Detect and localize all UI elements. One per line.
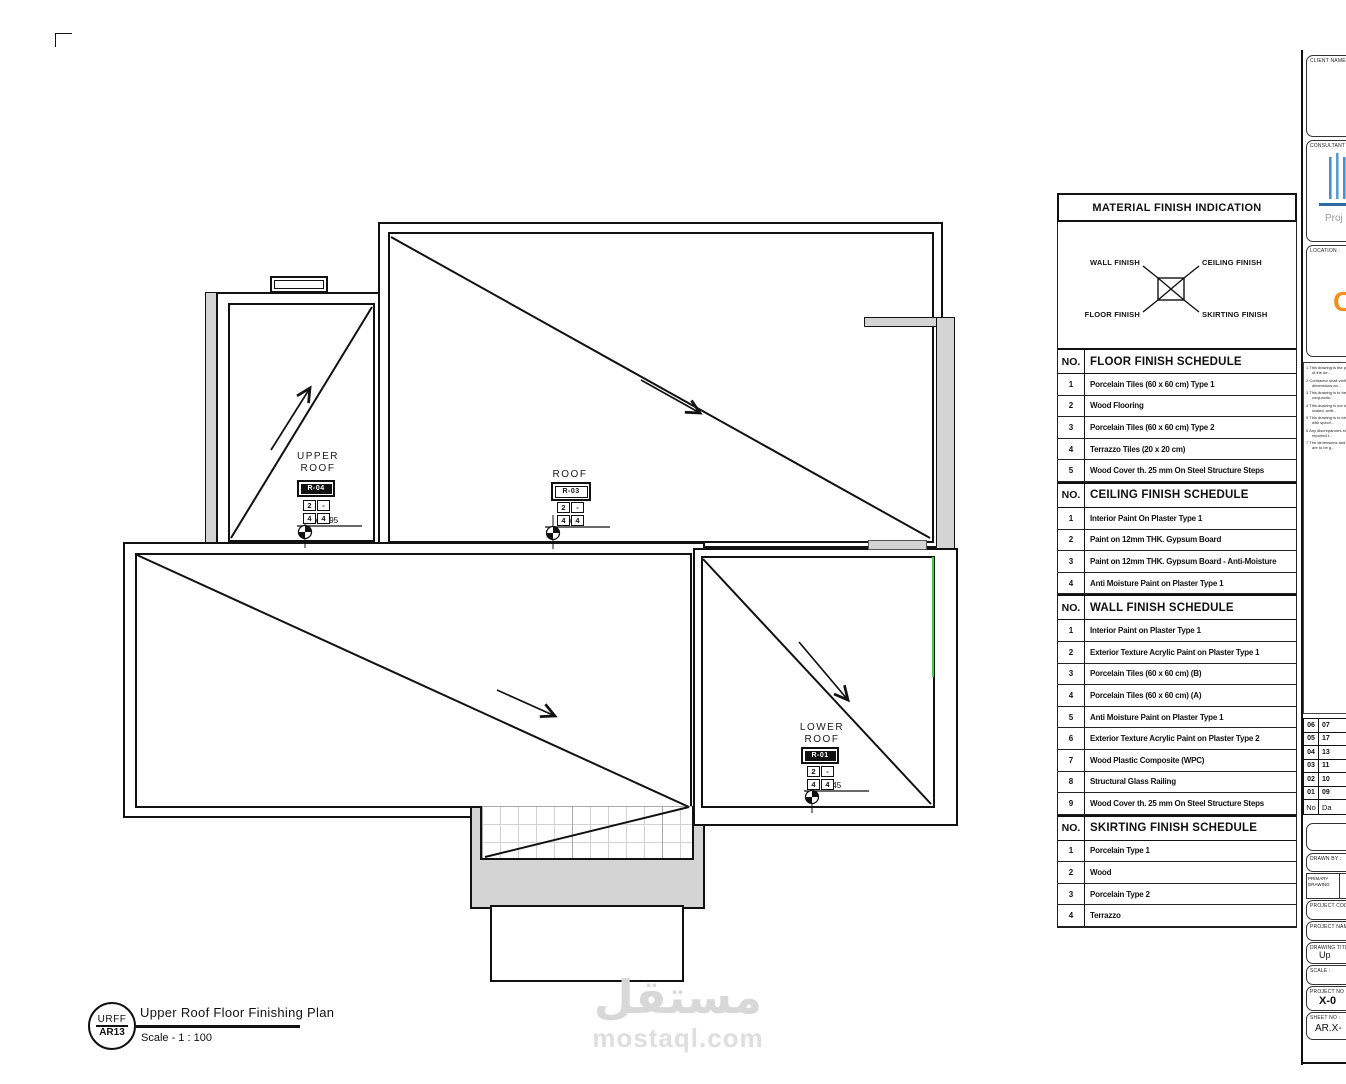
sheet-no-box: SHEET NO : AR.X- xyxy=(1306,1012,1346,1040)
lower-roof-tag: R-01 xyxy=(801,747,839,764)
upper-roof-label: UPPER ROOF xyxy=(283,451,353,475)
scale-box: SCALE : xyxy=(1306,965,1346,985)
primary-drawing-label: PRIMARY DRAWING xyxy=(1307,874,1340,898)
schedule-row: 1Porcelain Type 1 xyxy=(1058,841,1296,863)
project-no-value: X-0 xyxy=(1319,995,1336,1007)
sheet-no-label: SHEET NO : xyxy=(1310,1015,1340,1021)
lower-left-roof-area xyxy=(135,553,692,808)
legend-wall-finish: WALL FINISH xyxy=(1078,258,1140,267)
main-roof-label: ROOF xyxy=(535,469,605,481)
grey-gap-strip xyxy=(868,540,927,550)
schedule-row: 2Paint on 12mm THK. Gypsum Board xyxy=(1058,530,1296,552)
legend-skirting-finish: SKIRTING FINISH xyxy=(1202,310,1268,319)
schedule-row: 9Wood Cover th. 25 mm On Steel Structure… xyxy=(1058,793,1296,815)
note-item: 3 This drawing is to be read in conjunct… xyxy=(1306,390,1346,400)
revision-row: 0607 xyxy=(1304,719,1346,733)
drawn-by-label: DRAWN BY : xyxy=(1310,856,1341,862)
schedule-row: 6Exterior Texture Acrylic Paint on Plast… xyxy=(1058,728,1296,750)
schedule-row: 3Paint on 12mm THK. Gypsum Board - Anti-… xyxy=(1058,551,1296,573)
upper-roof-area xyxy=(228,303,375,542)
drawing-scale: Scale - 1 : 100 xyxy=(141,1032,212,1044)
revision-footer: NoDa xyxy=(1304,800,1346,814)
note-item: 7 The dimensions and levels are to be g.… xyxy=(1306,440,1346,450)
consultant-box: CONSULTANT : Proj xyxy=(1306,140,1346,242)
revision-row: 0210 xyxy=(1304,773,1346,787)
sheet-no-value: AR.X- xyxy=(1315,1023,1342,1034)
schedule-row: 3Porcelain Type 2 xyxy=(1058,884,1296,906)
consultant-label: CONSULTANT : xyxy=(1310,143,1346,149)
corner-registration-mark xyxy=(55,33,72,47)
project-code-label: PROJECT CODE : xyxy=(1310,903,1346,909)
project-no-box: PROJECT NO : X-0 xyxy=(1306,986,1346,1011)
schedule-row: 1Interior Paint On Plaster Type 1 xyxy=(1058,508,1296,530)
roof-curb xyxy=(270,276,328,293)
schedule-row: 5Wood Cover th. 25 mm On Steel Structure… xyxy=(1058,460,1296,482)
main-roof-finish-grid: 2- 44 xyxy=(557,502,584,526)
project-name-label: PROJECT NAME : xyxy=(1310,924,1346,930)
parapet-wall-right xyxy=(936,317,955,549)
note-item: 4 This drawing is not to be scaled, writ… xyxy=(1306,403,1346,413)
schedule-row: 4Terrazzo Tiles (20 x 20 cm) xyxy=(1058,439,1296,461)
watermark: مستقل mostaql.com xyxy=(578,972,778,1054)
schedule-row: 2Wood Flooring xyxy=(1058,396,1296,418)
finish-indication-legend: WALL FINISH CEILING FINISH FLOOR FINISH … xyxy=(1058,221,1296,348)
note-item: 5 This drawing is to be read with specif… xyxy=(1306,415,1346,425)
scale-label: SCALE : xyxy=(1310,968,1331,974)
schedule-row: 2Wood xyxy=(1058,862,1296,884)
client-name-box: CLIENT NAME : xyxy=(1306,55,1346,137)
location-logo-glyph: C xyxy=(1333,286,1346,318)
lower-extension xyxy=(490,905,684,982)
lower-terrace-notch xyxy=(480,806,694,860)
approval-box xyxy=(1306,823,1346,851)
schedule-header: NO.CEILING FINISH SCHEDULE xyxy=(1058,482,1296,508)
note-item: 2 Contractor shall verify all dimensions… xyxy=(1306,378,1346,388)
drawing-title-box: DRAWING TITLE : Up xyxy=(1306,942,1346,964)
schedule-row: 1Porcelain Tiles (60 x 60 cm) Type 1 xyxy=(1058,374,1296,396)
upper-roof-tag: R-04 xyxy=(297,480,335,497)
revision-table: 060705170413031102100109NoDa xyxy=(1303,718,1346,815)
selection-green-line xyxy=(932,557,934,677)
schedule-row: 4Porcelain Tiles (60 x 60 cm) (A) xyxy=(1058,685,1296,707)
consultant-logo-icon xyxy=(1307,151,1346,211)
schedule-row: 7Wood Plastic Composite (WPC) xyxy=(1058,750,1296,772)
finish-schedules: NO.FLOOR FINISH SCHEDULE1Porcelain Tiles… xyxy=(1058,348,1296,927)
drawing-sheet: +11.95 +9.45 +6.45 UPPER ROOF R-04 2- 44… xyxy=(0,0,1346,1084)
legend-floor-finish: FLOOR FINISH xyxy=(1074,310,1140,319)
lower-roof-label: LOWER ROOF xyxy=(787,722,857,746)
note-item: 6 Any discrepancies shall be reported t.… xyxy=(1306,428,1346,438)
watermark-latin: mostaql.com xyxy=(578,1023,778,1054)
schedule-row: 3Porcelain Tiles (60 x 60 cm) (B) xyxy=(1058,664,1296,686)
schedule-header: NO.SKIRTING FINISH SCHEDULE xyxy=(1058,815,1296,841)
drawn-by-box: DRAWN BY : xyxy=(1306,853,1346,872)
general-notes-box: 1 This drawing is the property of the de… xyxy=(1303,362,1346,714)
drawing-reference-bubble: URFF AR13 xyxy=(88,1002,136,1050)
schedule-header: NO.FLOOR FINISH SCHEDULE xyxy=(1058,348,1296,374)
schedule-header: NO.WALL FINISH SCHEDULE xyxy=(1058,594,1296,620)
main-roof-area xyxy=(388,232,934,543)
legend-ceiling-finish: CEILING FINISH xyxy=(1202,258,1262,267)
schedule-row: 4Terrazzo xyxy=(1058,905,1296,927)
material-finish-panel: MATERIAL FINISH INDICATION WALL FINISH C… xyxy=(1057,193,1297,928)
primary-drawing-box: PRIMARY DRAWING xyxy=(1306,873,1346,899)
location-box: LOCATION : C xyxy=(1306,245,1346,357)
bubble-code-top: URFF xyxy=(98,1014,127,1025)
project-name-box: PROJECT NAME : xyxy=(1306,921,1346,941)
panel-title: MATERIAL FINISH INDICATION xyxy=(1057,193,1297,222)
drawing-title-value: Up xyxy=(1319,950,1331,960)
client-name-label: CLIENT NAME : xyxy=(1310,58,1346,64)
legend-symbol xyxy=(1058,221,1296,348)
location-label: LOCATION : xyxy=(1310,248,1340,254)
title-underline xyxy=(136,1025,300,1028)
revision-row: 0311 xyxy=(1304,760,1346,774)
note-item: 1 This drawing is the property of the de… xyxy=(1306,365,1346,375)
main-roof-tag: R-03 xyxy=(551,482,591,501)
schedule-row: 1Interior Paint on Plaster Type 1 xyxy=(1058,620,1296,642)
schedule-row: 3Porcelain Tiles (60 x 60 cm) Type 2 xyxy=(1058,417,1296,439)
project-code-box: PROJECT CODE : xyxy=(1306,900,1346,920)
lower-roof-finish-grid: 2- 44 xyxy=(807,766,834,790)
revision-row: 0109 xyxy=(1304,787,1346,801)
revision-row: 0517 xyxy=(1304,733,1346,747)
project-no-label: PROJECT NO : xyxy=(1310,989,1346,995)
upper-roof-finish-grid: 2- 44 xyxy=(303,500,330,524)
consultant-logo-text: Proj xyxy=(1325,213,1343,224)
bubble-code-bottom: AR13 xyxy=(96,1025,128,1038)
strip-bottom-line xyxy=(1302,1062,1346,1064)
schedule-row: 5Anti Moisture Paint on Plaster Type 1 xyxy=(1058,707,1296,729)
revision-row: 0413 xyxy=(1304,746,1346,760)
drawing-title: Upper Roof Floor Finishing Plan xyxy=(140,1005,334,1020)
schedule-row: 8Structural Glass Railing xyxy=(1058,772,1296,794)
schedule-row: 4Anti Moisture Paint on Plaster Type 1 xyxy=(1058,573,1296,595)
schedule-row: 2Exterior Texture Acrylic Paint on Plast… xyxy=(1058,642,1296,664)
